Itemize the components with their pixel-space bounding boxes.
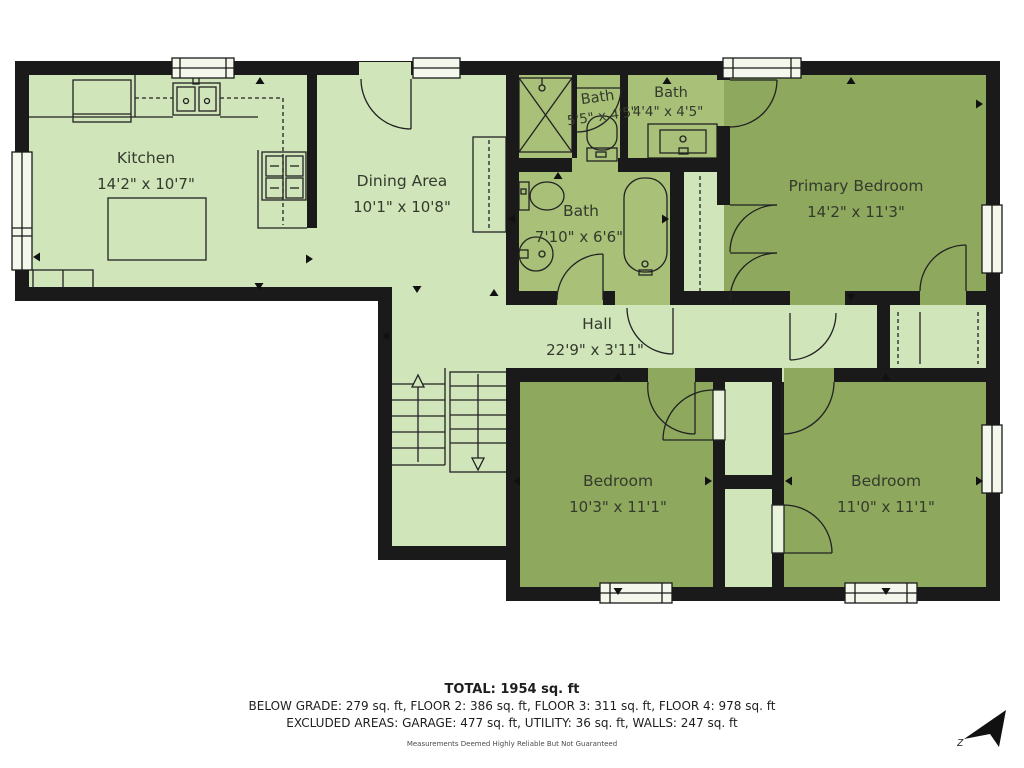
kitchen-dims: 14'2" x 10'7" <box>97 175 195 193</box>
area-summary: TOTAL: 1954 sq. ft BELOW GRADE: 279 sq. … <box>0 682 1024 748</box>
floor-plan: Kitchen 14'2" x 10'7" Dining Area 10'1" … <box>0 0 1024 768</box>
disclaimer: Measurements Deemed Highly Reliable But … <box>0 740 1024 748</box>
closet2-door-gap <box>772 505 784 553</box>
window-bedroom2-right <box>982 425 1002 493</box>
floors <box>22 68 986 601</box>
dining-dims: 10'1" x 10'8" <box>353 198 451 216</box>
bedroom2-label: Bedroom <box>851 472 921 490</box>
floor-plan-page: Kitchen 14'2" x 10'7" Dining Area 10'1" … <box>0 0 1024 768</box>
entry-door-gap <box>359 62 411 75</box>
window-kitchen-top <box>172 58 234 78</box>
bath3-label: Bath <box>563 202 599 220</box>
bedroom1-dims: 10'3" x 11'1" <box>569 498 667 516</box>
hall-floor <box>385 294 986 368</box>
primary-bedroom-dims: 14'2" x 11'3" <box>807 203 905 221</box>
kitchen-label: Kitchen <box>117 149 175 167</box>
closet1-door-gap <box>713 390 725 440</box>
excluded-areas: EXCLUDED AREAS: GARAGE: 477 sq. ft, UTIL… <box>0 715 1024 732</box>
bedroom1-label: Bedroom <box>583 472 653 490</box>
window-primary-top <box>723 58 801 78</box>
bedroom2-dims: 11'0" x 11'1" <box>837 498 935 516</box>
total-area: TOTAL: 1954 sq. ft <box>0 682 1024 697</box>
floor-areas: BELOW GRADE: 279 sq. ft, FLOOR 2: 386 sq… <box>0 698 1024 715</box>
hall-dims: 22'9" x 3'11" <box>546 341 644 359</box>
bath2-dims: 4'4" x 4'5" <box>633 104 704 120</box>
window-primary-right <box>982 205 1002 273</box>
window-dining-top <box>413 58 460 78</box>
window-bedroom2-bottom <box>845 583 917 603</box>
bath3-dims: 7'10" x 6'6" <box>535 228 623 246</box>
window-kitchen-left <box>12 152 32 270</box>
bath2-label: Bath <box>654 85 688 101</box>
dining-label: Dining Area <box>357 172 448 190</box>
hall-label: Hall <box>582 315 612 333</box>
window-bedroom1-bottom <box>600 583 672 603</box>
primary-bedroom-label: Primary Bedroom <box>789 177 924 195</box>
